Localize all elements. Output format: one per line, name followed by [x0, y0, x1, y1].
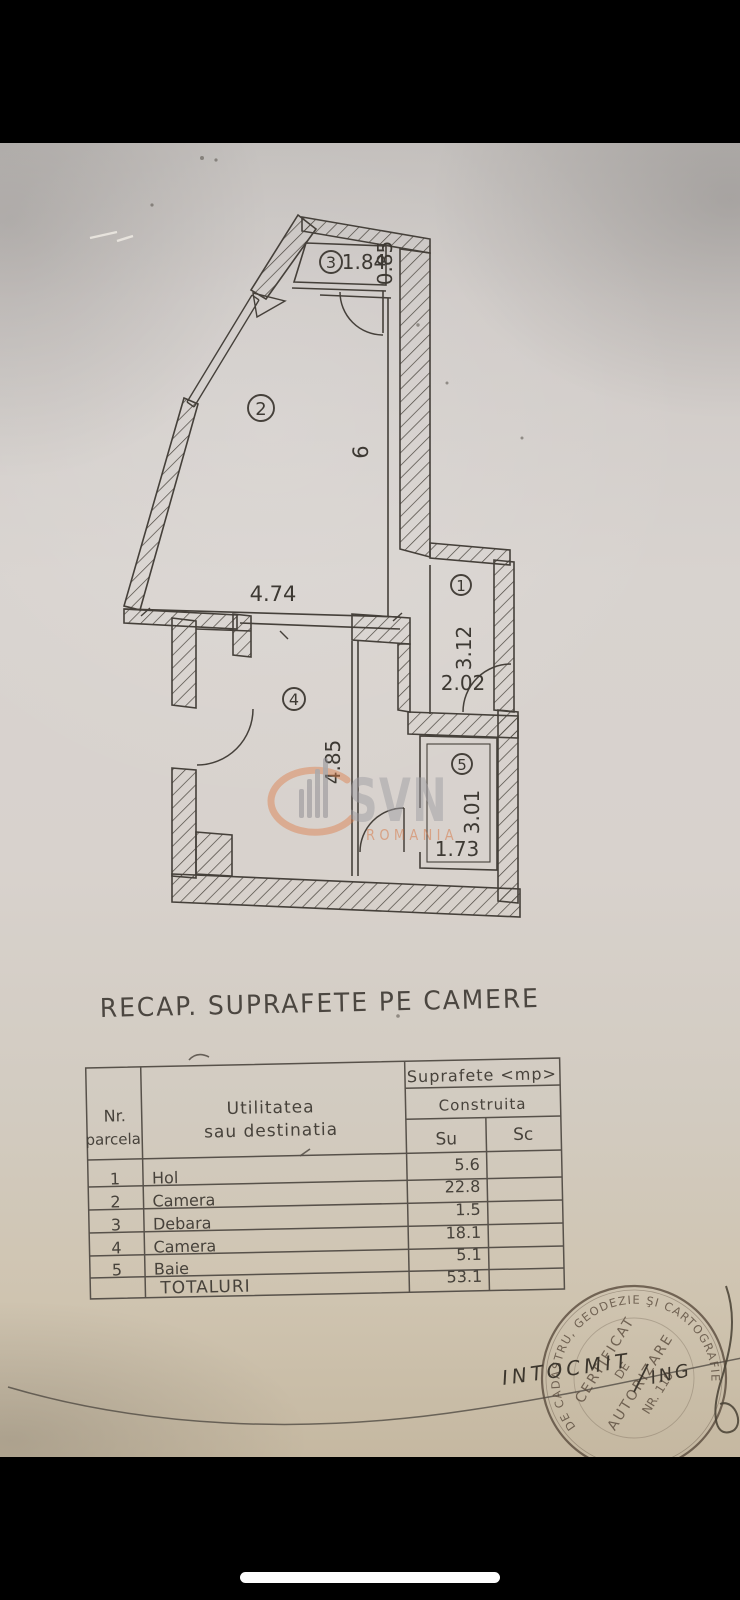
row-name: Hol [152, 1168, 179, 1188]
svn-watermark-country: ROMANIA [366, 826, 458, 844]
header-suprafete: Suprafete <mp> [407, 1064, 557, 1086]
row-name: Camera [153, 1236, 216, 1256]
room-4-number: 4 [289, 690, 299, 709]
room-2-number: 2 [255, 399, 266, 420]
row-su: 18.1 [445, 1223, 481, 1243]
total-label: TOTALURI [159, 1277, 251, 1299]
home-indicator[interactable] [240, 1572, 500, 1583]
svn-watermark: SVN ROMANIA [271, 758, 458, 844]
row-nr: 1 [110, 1169, 121, 1188]
dim-6: 6 [349, 445, 373, 458]
row-name: Baie [154, 1259, 189, 1279]
row-name: Debara [153, 1213, 212, 1233]
dim-3-12: 3.12 [452, 626, 476, 671]
header-destinatia: sau destinatia [204, 1120, 338, 1143]
total-su: 53.1 [446, 1267, 482, 1287]
room-1-number: 1 [456, 577, 466, 595]
header-nr: Nr. [103, 1106, 126, 1125]
top-letterbox-bar [0, 0, 740, 143]
dim-4-74: 4.74 [250, 582, 297, 606]
row-nr: 3 [111, 1215, 122, 1234]
row-su: 5.1 [456, 1245, 482, 1265]
row-su: 5.6 [454, 1155, 480, 1175]
room-3-number: 3 [326, 253, 336, 272]
row-su: 1.5 [455, 1200, 481, 1220]
header-utilitatea: Utilitatea [226, 1097, 314, 1119]
row-nr: 5 [112, 1260, 123, 1279]
dim-3-01: 3.01 [460, 790, 484, 835]
scanned-floorplan-photo: 1 2 3 4 5 1.84 0.85 6 4.74 3.12 2.02 4.8… [0, 0, 740, 1600]
row-su: 22.8 [444, 1177, 480, 1197]
room-5-number: 5 [457, 756, 467, 774]
row-name: Camera [152, 1190, 215, 1210]
phone-screen: 1 2 3 4 5 1.84 0.85 6 4.74 3.12 2.02 4.8… [0, 0, 740, 1600]
row-nr: 2 [110, 1192, 121, 1211]
dim-0-85: 0.85 [373, 241, 397, 286]
header-su: Su [435, 1129, 457, 1149]
row-nr: 4 [111, 1238, 122, 1257]
header-sc: Sc [513, 1125, 534, 1145]
dim-2-02: 2.02 [441, 671, 486, 695]
header-construita: Construita [438, 1095, 526, 1115]
header-parcela: parcela [85, 1130, 141, 1149]
